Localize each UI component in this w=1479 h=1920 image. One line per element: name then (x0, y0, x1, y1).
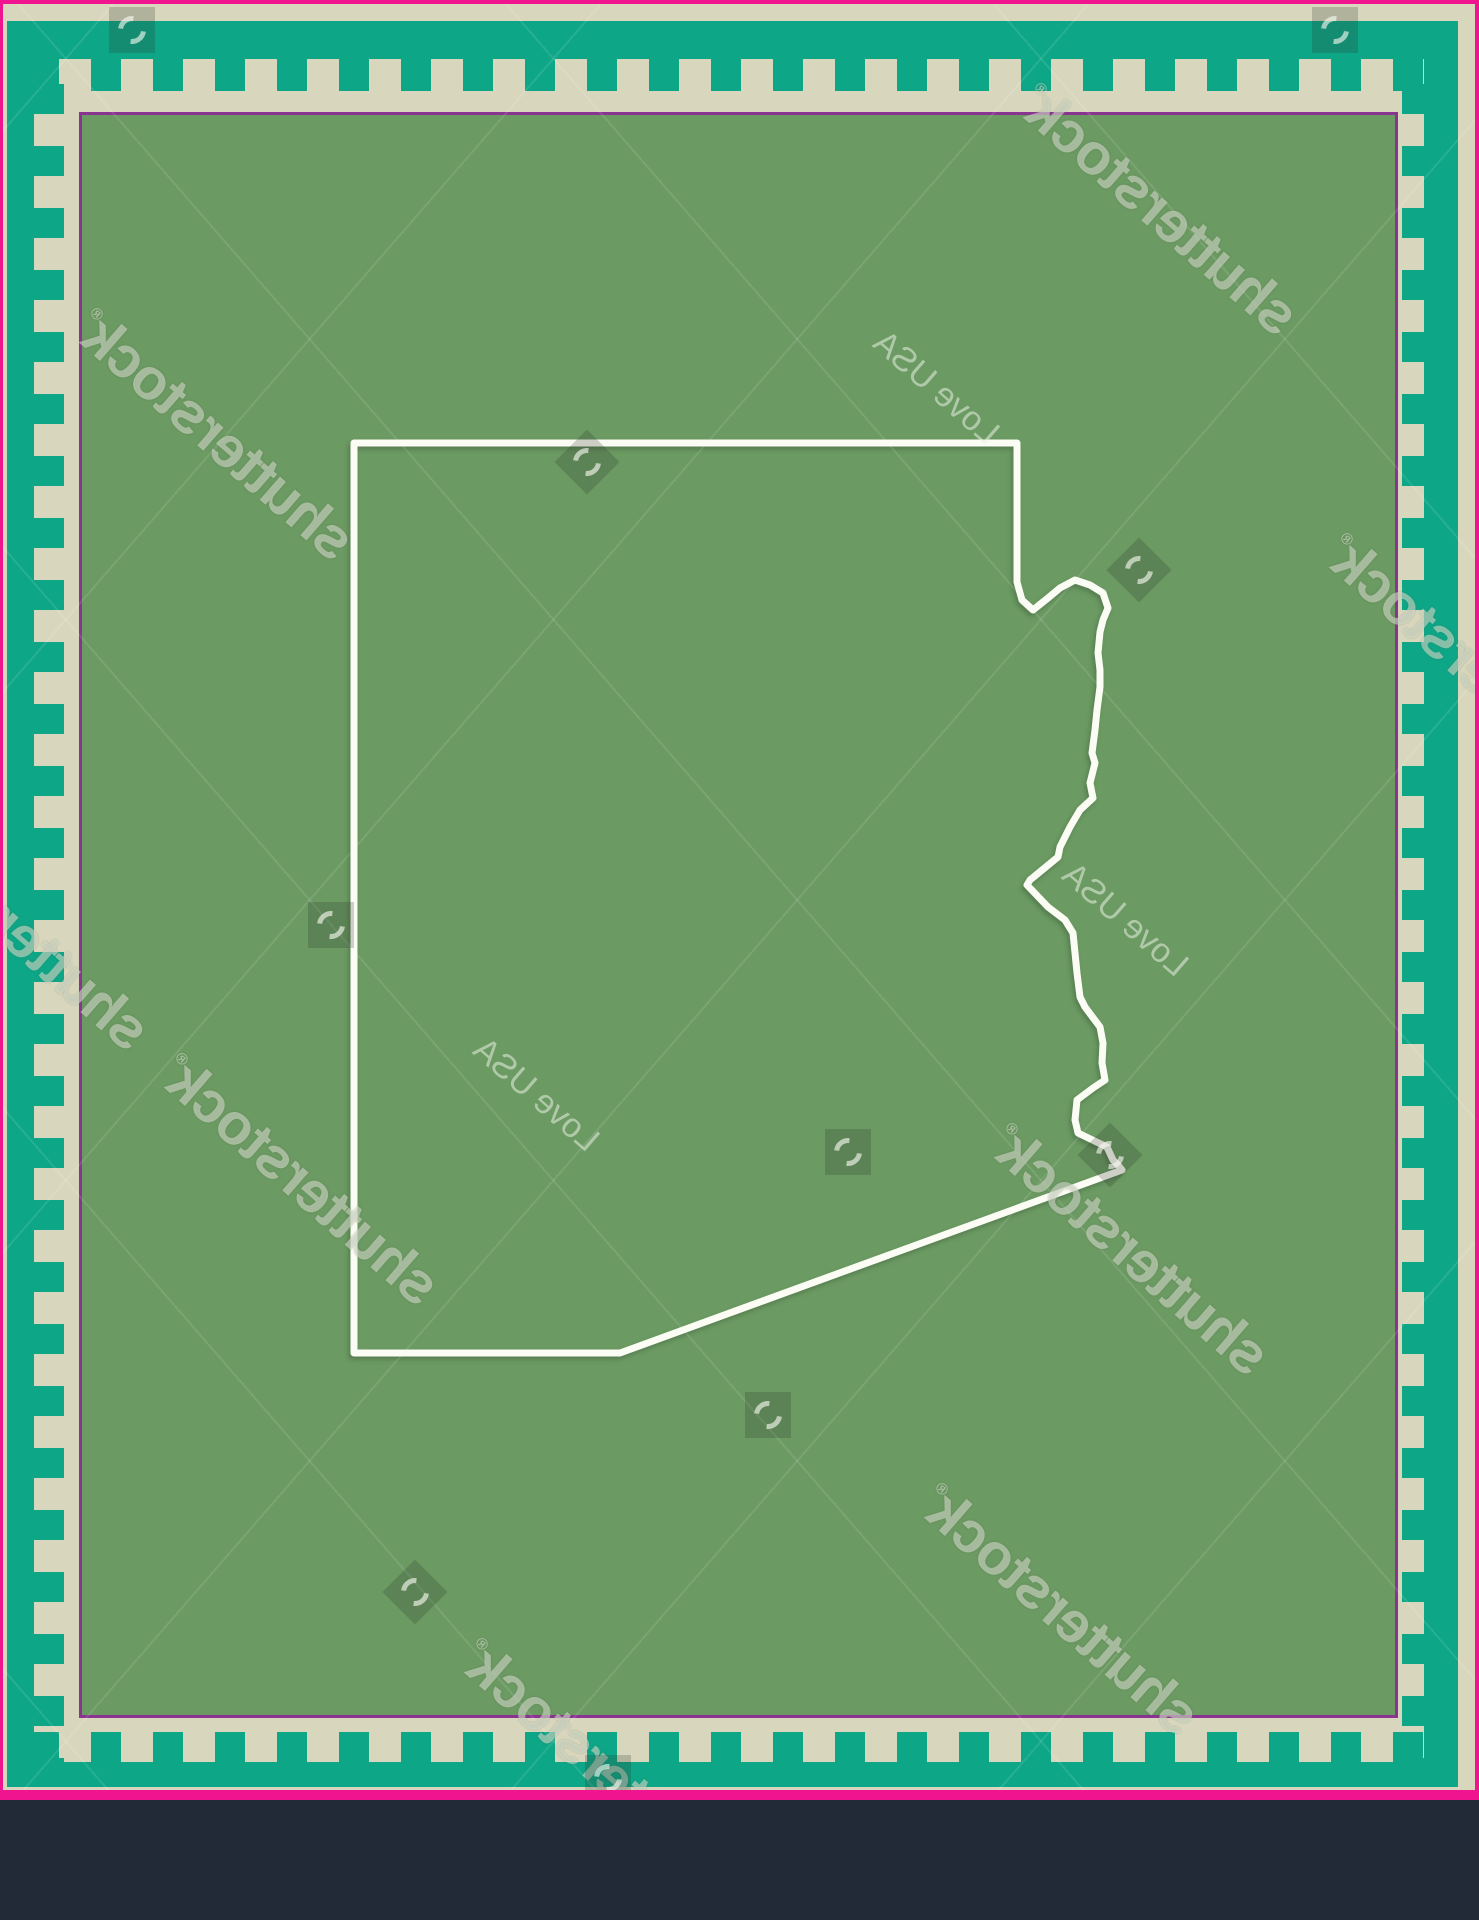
love-usa-caption: Love USA (1054, 855, 1195, 985)
rotate-arrows-icon (554, 429, 619, 494)
watermark-text: shutterstock® (62, 296, 368, 574)
watermark-text: shutterstock® (1006, 71, 1312, 349)
watermark-layer: shutterstock®shutterstock®shutterstock®s… (0, 0, 1479, 1800)
watermark-text: shutterstock® (0, 786, 163, 1064)
screenshot-viewport: shutterstock®shutterstock®shutterstock®s… (0, 0, 1479, 1920)
rotate-arcs-glyph (1090, 1135, 1129, 1174)
love-usa-caption: Love USA (465, 1030, 606, 1160)
rotate-arcs-glyph (311, 905, 350, 944)
watermark-text: shutterstock® (147, 1041, 453, 1319)
rotate-arcs-glyph (748, 1395, 787, 1434)
rotate-arcs-glyph (395, 1572, 434, 1611)
rotate-arrows-icon (308, 902, 354, 948)
mirrored-image: shutterstock®shutterstock®shutterstock®s… (0, 0, 1479, 1920)
rotate-arcs-glyph (1315, 10, 1354, 49)
footer-bar: shutterstock® IMAGE ID: 763043794 www.sh… (0, 1800, 1479, 1920)
rotate-arcs-glyph (112, 10, 151, 49)
stamp-illustration: shutterstock®shutterstock®shutterstock®s… (0, 0, 1479, 1800)
rotate-arcs-glyph (828, 1132, 867, 1171)
rotate-arrows-icon (745, 1392, 791, 1438)
watermark-text: shutterstock® (907, 1471, 1213, 1749)
rotate-arrows-icon (1312, 7, 1358, 53)
rotate-arrows-icon (1106, 537, 1171, 602)
rotate-arrows-icon (109, 7, 155, 53)
rotate-arcs-glyph (588, 1758, 627, 1797)
love-usa-caption: Love USA (865, 323, 1006, 453)
rotate-arcs-glyph (1119, 550, 1158, 589)
rotate-arcs-glyph (567, 442, 606, 481)
rotate-arrows-icon (382, 1559, 447, 1624)
rotate-arrows-icon (585, 1755, 631, 1800)
rotate-arrows-icon (825, 1129, 871, 1175)
watermark-text: shutterstock® (1312, 521, 1479, 799)
